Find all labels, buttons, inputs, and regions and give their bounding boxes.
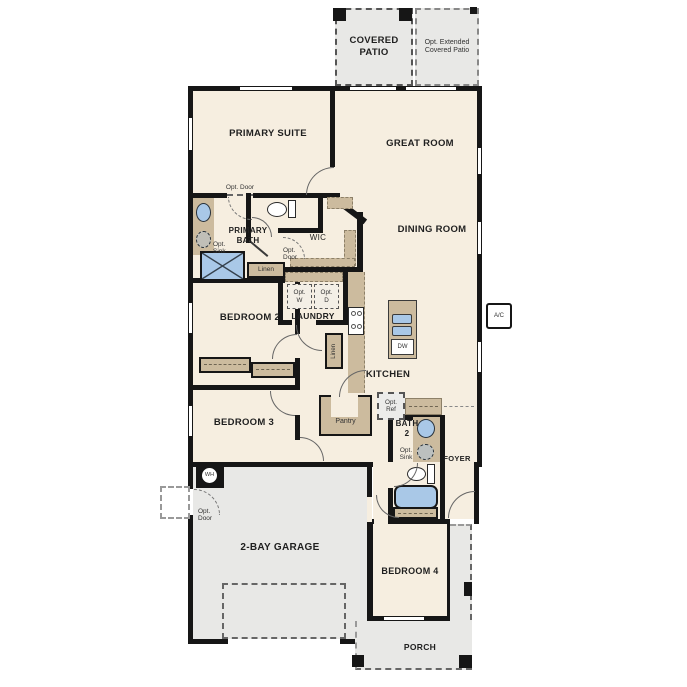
window xyxy=(477,342,482,372)
patio-corner-mark xyxy=(470,7,477,14)
closet-door xyxy=(251,362,295,378)
opt-door-label: Opt. Door xyxy=(283,247,307,262)
primary-suite-label: PRIMARY SUITE xyxy=(224,128,312,140)
front-door-opening xyxy=(450,519,474,524)
opt-ref-box: Opt. Ref xyxy=(377,392,405,420)
opt-door-swing-outline xyxy=(160,486,190,519)
opt-washer-box: Opt. W xyxy=(287,284,312,309)
foyer-label: FOYER xyxy=(437,454,477,464)
stove-icon xyxy=(348,307,364,335)
wall xyxy=(440,415,445,524)
toilet-tank-icon xyxy=(427,464,435,484)
linen-label: Linen xyxy=(331,344,338,359)
patio-post xyxy=(333,8,346,21)
patio-post xyxy=(399,8,412,21)
window xyxy=(188,118,193,150)
bedroom4-label: BEDROOM 4 xyxy=(370,566,450,578)
foyer-opening-line xyxy=(444,406,474,407)
opt-sink-icon xyxy=(196,231,211,248)
bedroom3-label: BEDROOM 3 xyxy=(198,417,290,429)
opt-dryer-label: Opt. D xyxy=(318,289,336,303)
wall xyxy=(357,212,363,272)
window xyxy=(477,222,482,254)
opt-extended-patio-label: Opt. Extended Covered Patio xyxy=(421,39,473,55)
garage-label: 2-BAY GARAGE xyxy=(230,541,330,554)
bath2-label: BATH 2 xyxy=(392,419,422,438)
opt-ref-label: Opt. Ref xyxy=(381,399,401,413)
garage-door-to-hall-opening xyxy=(367,497,372,522)
window xyxy=(188,303,193,333)
floor-plan: COVERED PATIO Opt. Extended Covered Pati… xyxy=(0,0,687,687)
island-sink-icon xyxy=(392,326,412,336)
window xyxy=(477,148,482,174)
bathtub-icon xyxy=(394,485,438,509)
wic-label: WIC xyxy=(300,233,336,243)
opt-door-label: Opt. Door xyxy=(219,184,261,191)
opt-sink-label: Opt. Sink xyxy=(394,447,418,462)
sink-icon xyxy=(196,203,211,222)
window xyxy=(188,406,193,436)
ac-label: A/C xyxy=(494,313,504,320)
window xyxy=(406,86,456,91)
porch-post xyxy=(464,582,472,596)
bedroom4-door-opening xyxy=(374,519,388,524)
bedroom4-closet-shelf xyxy=(393,507,438,519)
garage-vehicle-door-opening xyxy=(228,639,340,644)
window xyxy=(350,86,396,91)
toilet-tank-icon xyxy=(288,200,296,218)
toilet-bowl-icon xyxy=(267,202,287,217)
porch-post xyxy=(459,655,472,668)
laundry-cabinet xyxy=(285,272,343,282)
water-heater-icon: WH xyxy=(200,466,219,485)
opt-dryer-box: Opt. D xyxy=(314,284,339,309)
opt-washer-label: Opt. W xyxy=(291,289,309,303)
dishwasher-icon: DW xyxy=(391,339,414,355)
opt-door-label: Opt. Door xyxy=(198,508,224,523)
opt-sink-icon xyxy=(417,444,434,460)
linen-label: Linen xyxy=(258,266,274,273)
wall xyxy=(330,86,335,167)
wall xyxy=(188,385,300,390)
water-heater-label: WH xyxy=(205,472,214,478)
counter xyxy=(405,398,442,415)
window xyxy=(384,616,424,621)
window xyxy=(240,86,292,91)
porch-label: PORCH xyxy=(380,642,460,653)
bedroom2-label: BEDROOM 2 xyxy=(200,312,300,324)
linen-closet: Linen xyxy=(247,262,285,278)
dining-room-label: DINING ROOM xyxy=(394,224,470,236)
opt-sink-label: Opt. Sink xyxy=(213,241,237,256)
pantry-label: Pantry xyxy=(321,418,370,426)
great-room-label: GREAT ROOM xyxy=(380,138,460,150)
porch-post xyxy=(352,655,364,667)
opt-extended-patio-area: Opt. Extended Covered Patio xyxy=(415,8,479,86)
closet-door xyxy=(199,357,251,373)
garage-door-swing xyxy=(222,583,346,639)
ac-unit: A/C xyxy=(486,303,512,329)
island-sink-icon xyxy=(392,314,412,324)
covered-patio-label: COVERED PATIO xyxy=(343,35,405,60)
wic-shelf xyxy=(327,197,353,209)
dishwasher-label: DW xyxy=(398,344,408,351)
linen-closet-hall: Linen xyxy=(325,333,343,369)
kitchen-label: KITCHEN xyxy=(352,369,424,381)
pantry-interior xyxy=(331,395,358,417)
wall xyxy=(318,193,323,231)
